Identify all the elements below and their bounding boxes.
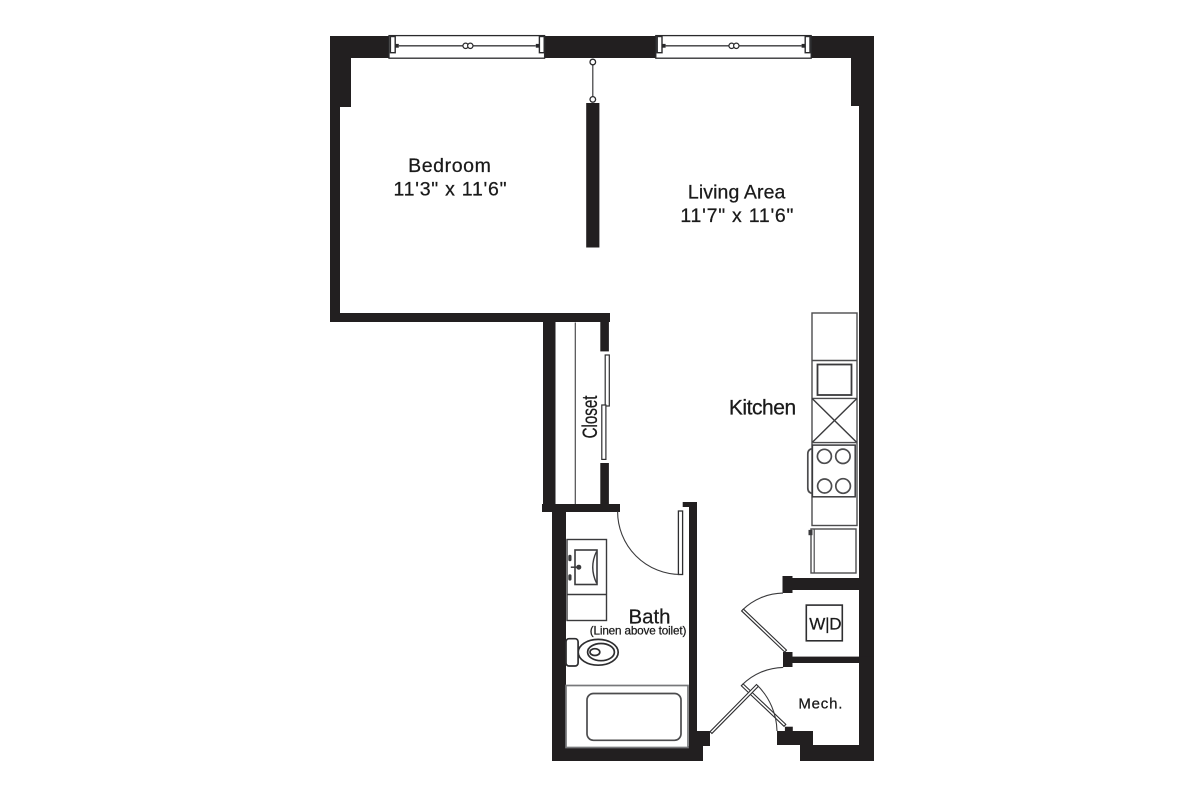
- svg-text:11'7" x 11'6": 11'7" x 11'6": [680, 205, 794, 227]
- svg-text:Closet: Closet: [577, 396, 601, 439]
- svg-text:Living Area: Living Area: [688, 182, 786, 204]
- svg-text:11'3" x 11'6": 11'3" x 11'6": [393, 178, 507, 200]
- svg-text:Mech.: Mech.: [798, 695, 843, 712]
- svg-text:Bedroom: Bedroom: [408, 155, 491, 177]
- svg-text:Kitchen: Kitchen: [729, 397, 796, 420]
- svg-text:W|D: W|D: [809, 614, 841, 633]
- svg-text:(Linen above toilet): (Linen above toilet): [590, 625, 687, 638]
